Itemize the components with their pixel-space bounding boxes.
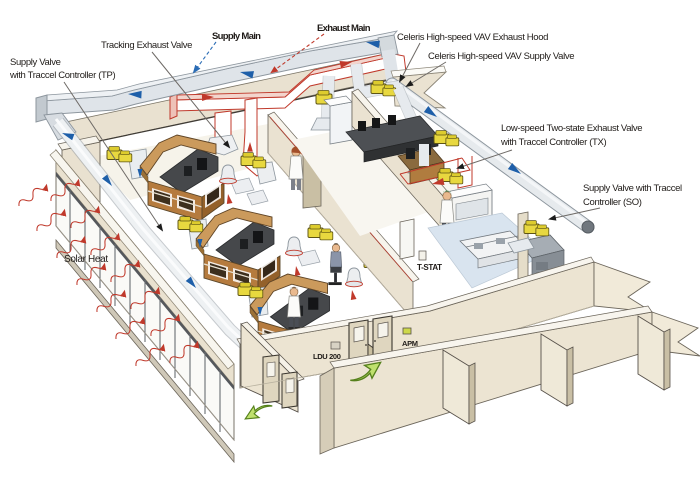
svg-text:with Traccel Controller (TX): with Traccel Controller (TX) bbox=[500, 137, 606, 148]
svg-text:Celeris High-speed VAV Exhaust: Celeris High-speed VAV Exhaust Hood bbox=[397, 32, 548, 43]
svg-text:Exhaust Main: Exhaust Main bbox=[317, 23, 371, 34]
svg-text:Celeris High-speed VAV Supply: Celeris High-speed VAV Supply Valve bbox=[428, 51, 574, 62]
svg-text:Supply Valve: Supply Valve bbox=[10, 57, 61, 68]
svg-text:Controller (SO): Controller (SO) bbox=[583, 197, 642, 208]
svg-text:Solar Heat: Solar Heat bbox=[64, 254, 108, 265]
svg-text:LDU 200: LDU 200 bbox=[313, 352, 341, 361]
svg-text:with Traccel Controller (TP): with Traccel Controller (TP) bbox=[9, 70, 115, 81]
svg-text:Tracking Exhaust Valve: Tracking Exhaust Valve bbox=[101, 40, 192, 51]
svg-text:Low-speed Two-state Exhaust Va: Low-speed Two-state Exhaust Valve bbox=[501, 123, 642, 134]
svg-text:Supply Valve with Traccel: Supply Valve with Traccel bbox=[583, 183, 682, 194]
svg-text:T-STAT: T-STAT bbox=[417, 263, 442, 272]
svg-text:Supply Main: Supply Main bbox=[212, 31, 261, 42]
svg-text:APM: APM bbox=[402, 339, 418, 348]
